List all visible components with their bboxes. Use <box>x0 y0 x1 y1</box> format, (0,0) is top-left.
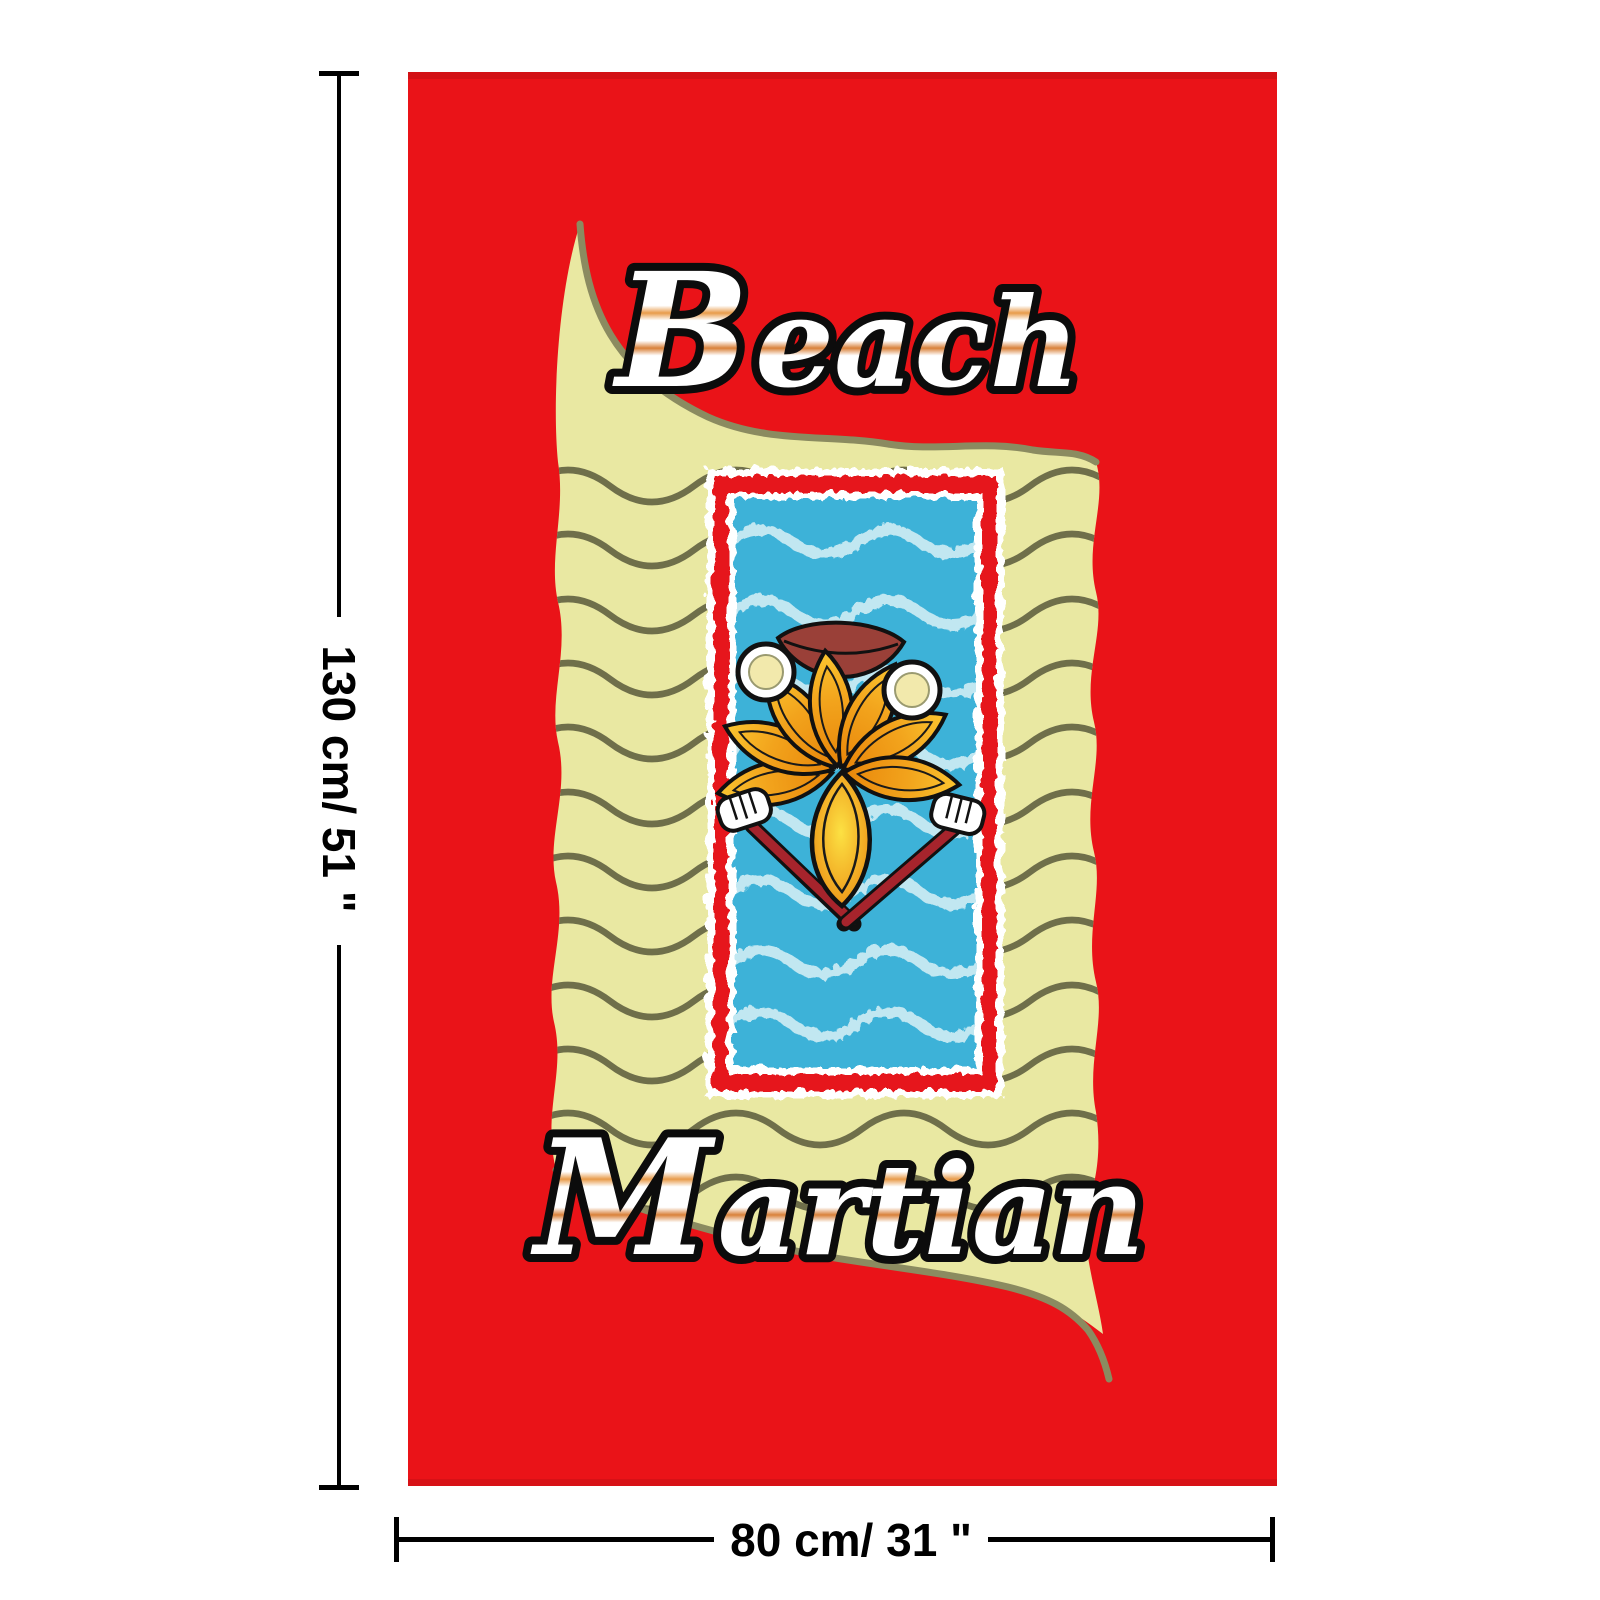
martian-eye-right <box>884 662 940 718</box>
martian-title-rest: artian <box>718 1136 1145 1284</box>
height-bottom-tick <box>319 1485 359 1490</box>
martian-eye-left <box>738 644 794 700</box>
product-mockup-page: { "product": { "title_top_initial": "B",… <box>0 0 1600 1600</box>
height-line-lower <box>337 945 341 1489</box>
martian-title-initial: M <box>530 1104 717 1292</box>
beach-title-rest: each <box>755 271 1080 416</box>
towel-mockup: B each M artian <box>408 72 1277 1486</box>
width-line-left <box>396 1537 714 1542</box>
width-right-tick <box>1270 1517 1275 1562</box>
width-line-right <box>988 1537 1274 1542</box>
height-line-upper <box>337 73 341 617</box>
towel-bottom-edge-shade <box>408 1479 1277 1486</box>
towel-artwork: B each M artian <box>408 72 1277 1486</box>
towel-top-edge-shade <box>408 72 1277 79</box>
height-dimension-label: 130 cm/ 51 " <box>312 645 366 912</box>
beach-title-initial: B <box>612 239 750 424</box>
width-dimension-label: 80 cm/ 31 " <box>714 1513 988 1567</box>
